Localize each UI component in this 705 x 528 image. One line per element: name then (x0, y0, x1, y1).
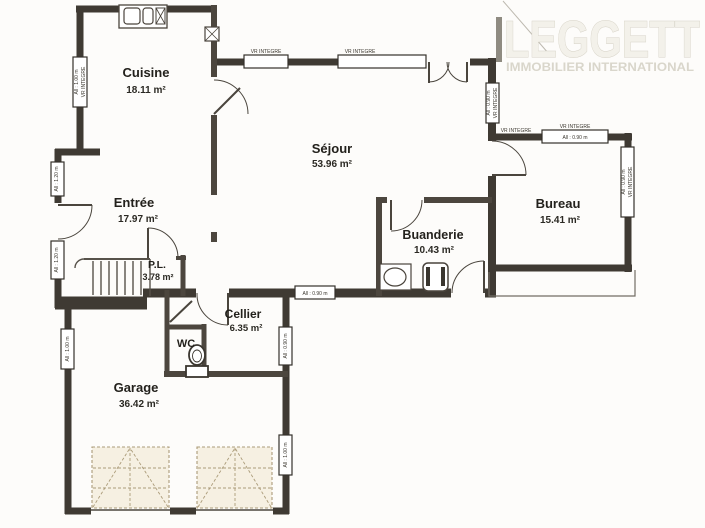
room-label-sejour: Séjour (312, 141, 352, 156)
garage-door-1 (92, 447, 169, 508)
sink-basin (124, 8, 140, 24)
leggett-logo: LEGGETT IMMOBILIER INTERNATIONAL (496, 1, 700, 74)
garage-doors (92, 447, 272, 508)
wc-door (170, 301, 192, 322)
window-label: VR INTEGRE (501, 128, 532, 134)
door-leaf (170, 301, 192, 322)
garage-door-panel (197, 447, 272, 508)
room-label-wc: WC (177, 338, 195, 350)
buanderie-fixtures (380, 263, 448, 291)
window-label: VR INTEGRE (251, 49, 282, 55)
logo-tagline-text: IMMOBILIER INTERNATIONAL (506, 60, 694, 74)
room-label-garage: Garage (114, 380, 159, 395)
window-label: All : 0.90 m (562, 135, 587, 141)
doors (58, 62, 526, 325)
terrace-outline (489, 270, 635, 296)
opening-buanderie-bottom-door (451, 286, 485, 300)
window-label: VR INTEGRE (493, 87, 499, 118)
room-area-sejour: 53.96 m² (312, 159, 353, 170)
room-area-bureau: 15.41 m² (540, 215, 581, 226)
room-area-cellier: 6.35 m² (230, 323, 263, 334)
opening-front-door (51, 203, 65, 241)
opening-bureau-door (485, 141, 499, 176)
floorplan-page: LEGGETT IMMOBILIER INTERNATIONAL (0, 0, 705, 528)
staircase (75, 259, 150, 296)
window-label: All : 0.90 m (283, 333, 289, 358)
room-label-bureau: Bureau (536, 196, 581, 211)
machine-detail (426, 267, 430, 286)
room-label-entree: Entrée (114, 195, 154, 210)
opening-entree-sejour (207, 195, 221, 232)
logo-bar-icon (496, 17, 502, 62)
opening-cellier-door (196, 286, 229, 300)
door-arc (148, 228, 178, 258)
laundry-sink-basin (384, 268, 406, 286)
window-label: All : 0.90 m (621, 169, 627, 194)
window-sejour-top-1 (244, 55, 288, 68)
window-label: All : 1.20 m (54, 166, 60, 191)
toilet-bowl-inner (193, 350, 202, 362)
room-label-cellier: Cellier (225, 307, 262, 321)
window-label: All : 1.00 m (283, 442, 289, 467)
window-label: VR INTEGRE (560, 124, 591, 130)
machine-detail (441, 267, 445, 286)
window-label: VR INTEGRE (345, 49, 376, 55)
room-label-cuisine: Cuisine (123, 65, 170, 80)
window-label: All : 0.90 m (302, 291, 327, 297)
window-label: All : 1.20 m (54, 247, 60, 272)
window-sejour-top-2 (338, 55, 426, 68)
stair-rail-hook (75, 259, 84, 268)
garage-door-panel (92, 447, 169, 508)
floorplan-drawing: LEGGETT IMMOBILIER INTERNATIONAL (0, 0, 705, 528)
opening-buanderie-top-door (387, 193, 424, 207)
toilet-tank (186, 366, 208, 377)
room-labels: Cuisine 18.11 m² Séjour 53.96 m² Entrée … (114, 65, 581, 410)
window-label: All : 1.00 m (65, 336, 71, 361)
room-area-buanderie: 10.43 m² (414, 245, 455, 256)
room-area-cuisine: 18.11 m² (126, 85, 166, 96)
window-label: All : 0.90 m (486, 90, 492, 115)
room-label-buanderie: Buanderie (402, 228, 463, 242)
room-label-pl: P.L. (148, 259, 166, 271)
garage-door-2 (197, 447, 272, 508)
window-label: VR INTEGRE (628, 166, 634, 197)
duct-symbol (205, 27, 219, 41)
kitchen-sink-unit (119, 5, 167, 28)
room-area-garage: 36.42 m² (119, 399, 160, 410)
window-label: All : 1.00 m (74, 69, 80, 94)
pl-door (148, 228, 178, 258)
room-area-entree: 17.97 m² (118, 214, 159, 225)
room-area-pl: 3.78 m² (142, 272, 173, 282)
window-label: VR INTEGRE (81, 66, 87, 97)
sink-basin (143, 8, 153, 24)
